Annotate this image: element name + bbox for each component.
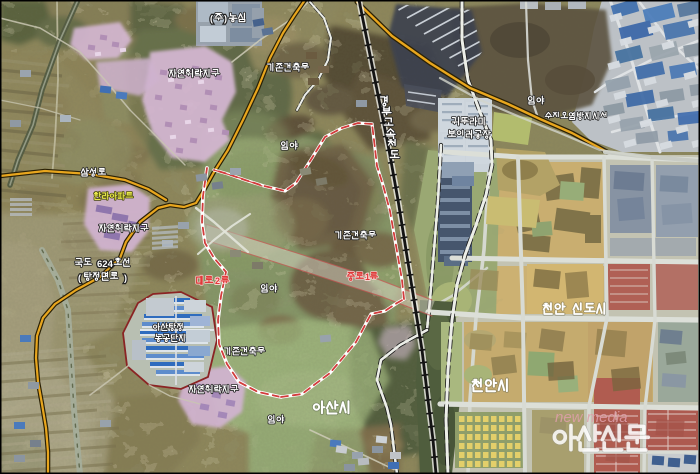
- svg-text:new media: new media: [555, 409, 628, 426]
- svg-text:(: (: [78, 273, 81, 283]
- svg-text:624: 624: [97, 259, 114, 270]
- svg-text:): ): [124, 273, 127, 283]
- svg-text:): ): [224, 14, 227, 24]
- svg-text:(: (: [210, 14, 213, 24]
- svg-text:2: 2: [215, 276, 220, 286]
